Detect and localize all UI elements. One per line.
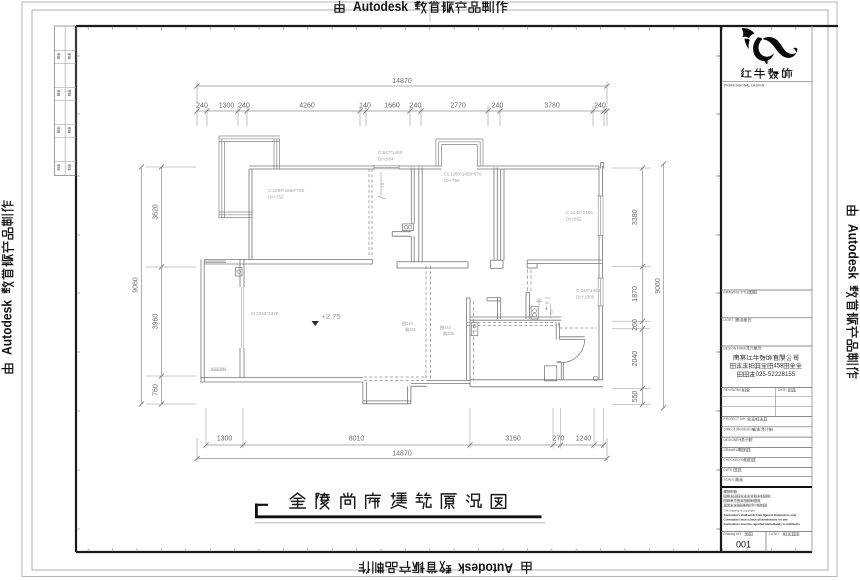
svg-text:14870: 14870: [392, 78, 412, 85]
svg-text:458: 458: [774, 363, 784, 370]
svg-text:PROFESSIONAL DESIGN: PROFESSIONAL DESIGN: [724, 84, 765, 88]
svg-text:DRAWING TITLE: DRAWING TITLE: [724, 290, 750, 294]
svg-text:Autodesk: Autodesk: [353, 0, 408, 14]
svg-text:The drawing is copyright: The drawing is copyright: [724, 508, 756, 512]
svg-text:DATE: DATE: [778, 388, 787, 392]
svg-text:DH:752: DH:752: [268, 195, 284, 200]
svg-text:335: 335: [447, 331, 454, 336]
svg-text:C:1569*1656*790: C:1569*1656*790: [268, 188, 305, 193]
svg-text:760: 760: [153, 384, 160, 396]
svg-text:240: 240: [238, 103, 250, 110]
svg-text:9060: 9060: [133, 277, 140, 293]
svg-text:1.6: 1.6: [381, 183, 385, 188]
svg-text:001: 001: [736, 540, 751, 550]
svg-text:9060: 9060: [655, 278, 662, 294]
svg-text:DH:962: DH:962: [566, 217, 582, 222]
svg-text:240: 240: [196, 103, 208, 110]
svg-text:2040: 2040: [632, 351, 639, 367]
svg-text:3380: 3380: [632, 209, 639, 225]
svg-text:DRAWING: DRAWING: [724, 448, 740, 452]
svg-text:Drawing NO.: Drawing NO.: [724, 532, 742, 536]
svg-text:240: 240: [410, 103, 422, 110]
svg-text:+2.75: +2.75: [321, 312, 340, 321]
svg-text:SCALE: SCALE: [724, 478, 736, 482]
svg-text:1870: 1870: [632, 286, 639, 302]
svg-text:14870: 14870: [392, 451, 412, 458]
svg-text:Contractors must be reported i: Contractors must be reported immediately…: [724, 522, 801, 526]
svg-text:REVISIONS: REVISIONS: [724, 388, 743, 392]
svg-text:CHECKED BY: CHECKED BY: [724, 458, 746, 462]
svg-text:PROJECT DIR.: PROJECT DIR.: [724, 417, 747, 421]
svg-text:DESIGNER: DESIGNER: [724, 438, 742, 442]
svg-text:LIGHT: LIGHT: [724, 318, 734, 322]
svg-text:C:840*1460: C:840*1460: [576, 288, 601, 293]
svg-text:4260: 4260: [299, 103, 315, 110]
svg-text:240: 240: [492, 103, 504, 110]
svg-text:140: 140: [359, 103, 371, 110]
svg-text:2770: 2770: [450, 103, 466, 110]
svg-text:240: 240: [444, 325, 451, 330]
svg-text:270: 270: [553, 436, 565, 443]
svg-text:Contractors must check all dim: Contractors must check all dimensions on…: [724, 518, 788, 522]
svg-text:3160: 3160: [505, 436, 521, 443]
svg-text:Autodesk: Autodesk: [0, 300, 15, 355]
svg-text:3960: 3960: [153, 314, 160, 330]
svg-text:DH:964: DH:964: [378, 157, 394, 162]
svg-text:240: 240: [406, 321, 413, 326]
svg-text:DH:1000: DH:1000: [576, 295, 595, 300]
svg-text:C:847*1460: C:847*1460: [378, 150, 403, 155]
svg-text:Contractors shall work from fi: Contractors shall work from figured dime…: [724, 513, 797, 517]
svg-text:DESIGN FIRM: DESIGN FIRM: [724, 346, 746, 350]
svg-text:DIRECTOR/DESIGN: DIRECTOR/DESIGN: [724, 428, 755, 432]
svg-text:260: 260: [632, 319, 639, 331]
svg-text:C:1445*1456: C:1445*1456: [566, 210, 593, 215]
svg-text:3780: 3780: [544, 103, 560, 110]
svg-text:550: 550: [632, 390, 639, 402]
svg-text:DATE: DATE: [724, 468, 733, 472]
svg-text:8010: 8010: [349, 436, 365, 443]
svg-text:335: 335: [409, 327, 416, 332]
svg-text:1300: 1300: [219, 103, 235, 110]
svg-text:J.A NO.: J.A NO.: [769, 532, 780, 536]
svg-text:DH:756: DH:756: [444, 178, 460, 183]
svg-text:025-52228155: 025-52228155: [756, 371, 796, 378]
svg-text:M.2343*2370: M.2343*2370: [251, 311, 279, 316]
svg-text:Autodesk: Autodesk: [458, 560, 513, 575]
svg-text:1240: 1240: [576, 436, 592, 443]
svg-text:65: 65: [545, 301, 549, 305]
svg-text:1300: 1300: [217, 436, 233, 443]
svg-text:CL1280*1456*870: CL1280*1456*870: [444, 172, 482, 177]
svg-text:240: 240: [594, 103, 606, 110]
svg-text:890: 890: [550, 309, 554, 315]
svg-text:1660: 1660: [384, 103, 400, 110]
svg-text:Autodesk: Autodesk: [845, 224, 860, 279]
svg-text:3620: 3620: [153, 204, 160, 220]
